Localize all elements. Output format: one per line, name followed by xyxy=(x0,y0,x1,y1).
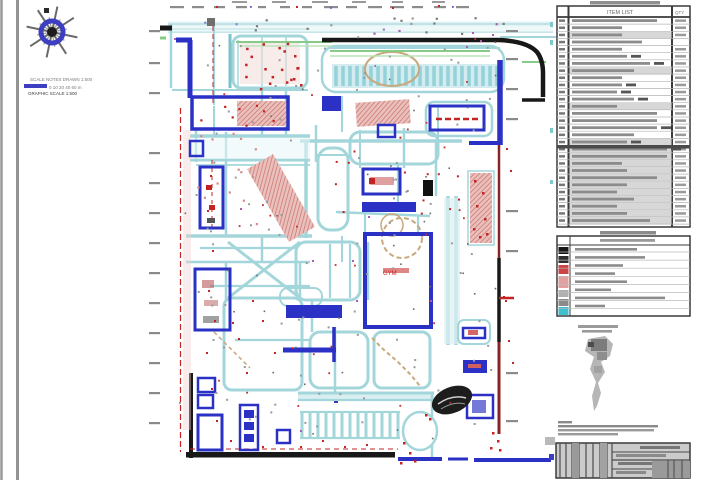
svg-text:GRAPHIC SCALE 1:500: GRAPHIC SCALE 1:500 xyxy=(28,91,78,96)
svg-text:QTY: QTY xyxy=(675,10,684,15)
svg-text:ITEM LIST: ITEM LIST xyxy=(607,10,634,16)
svg-text:SCALE NOTES DRAWN 1:500: SCALE NOTES DRAWN 1:500 xyxy=(30,77,93,82)
svg-text:0 10 20 40 60 m: 0 10 20 40 60 m xyxy=(49,85,82,90)
